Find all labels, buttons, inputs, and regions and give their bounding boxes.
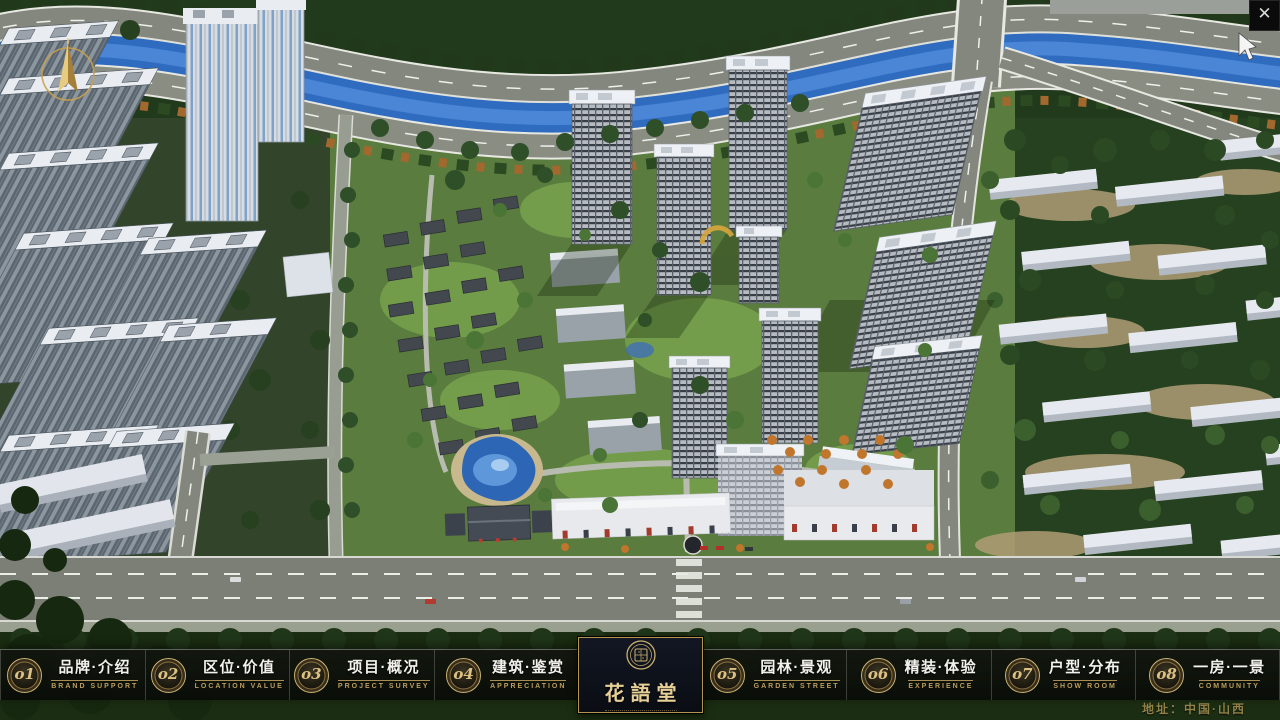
nav-number-badge: o8 [1149,658,1184,693]
nav-number-badge: o3 [294,658,329,693]
nav-item-subtitle: BRAND SUPPORT [51,680,138,690]
nav-group-right: o5 园林·景观 GARDEN STREET o6 精装·体验 EXPERIEN… [702,650,1280,700]
nav-item-title: 户型·分布 [1049,660,1122,677]
nav-item-title: 精装·体验 [905,660,978,677]
presentation-window: ✕ o1 品牌·介绍 BRAND SUPPORT o2 区位·价值 LOCATI… [0,0,1280,720]
nav-group-left: o1 品牌·介绍 BRAND SUPPORT o2 区位·价值 LOCATION… [0,650,578,700]
masterplan-render [0,0,1280,720]
nav-number-badge: o5 [710,658,745,693]
nav-item-location[interactable]: o2 区位·价值 LOCATION VALUE [145,650,290,700]
nav-item-brand[interactable]: o1 品牌·介绍 BRAND SUPPORT [0,650,145,700]
compass-icon [36,38,100,106]
close-button[interactable]: ✕ [1249,0,1280,31]
nav-item-floorplan[interactable]: o7 户型·分布 SHOW ROOM [991,650,1135,700]
nav-number-badge: o2 [151,658,186,693]
nav-item-subtitle: LOCATION VALUE [195,680,284,690]
nav-item-architecture[interactable]: o4 建筑·鉴赏 APPRECIATION [434,650,579,700]
nav-item-subtitle: COMMUNITY [1199,680,1260,690]
nav-item-subtitle: SHOW ROOM [1053,680,1117,690]
main-road [0,546,1280,632]
nav-item-title: 园林·景观 [760,660,833,677]
nav-item-title: 一房·一景 [1193,660,1266,677]
nav-item-subtitle: PROJECT SURVEY [338,680,430,690]
logo-divider [605,710,677,711]
nav-number-badge: o1 [7,658,42,693]
seal-icon [626,640,656,675]
swimming-pool [451,434,543,506]
project-address: 地址：中国·山西 [1142,700,1246,717]
nav-number-badge: o6 [861,658,896,693]
brand-name: 花語堂 [599,677,683,706]
nav-item-interior[interactable]: o6 精装·体验 EXPERIENCE [846,650,990,700]
brand-logo-panel[interactable]: 花語堂 [578,637,703,713]
nav-item-title: 品牌·介绍 [59,660,132,677]
nav-item-title: 区位·价值 [203,660,276,677]
nav-item-views[interactable]: o8 一房·一景 COMMUNITY [1135,650,1280,700]
nav-number-badge: o7 [1005,658,1040,693]
nav-item-title: 项目·概况 [347,660,420,677]
nav-item-subtitle: APPRECIATION [490,680,566,690]
nav-number-badge: o4 [446,658,481,693]
nav-item-subtitle: EXPERIENCE [908,680,973,690]
nav-item-project[interactable]: o3 项目·概况 PROJECT SURVEY [289,650,434,700]
nav-item-subtitle: GARDEN STREET [754,680,840,690]
nav-item-title: 建筑·鉴赏 [492,660,565,677]
nav-item-garden[interactable]: o5 园林·景观 GARDEN STREET [702,650,846,700]
